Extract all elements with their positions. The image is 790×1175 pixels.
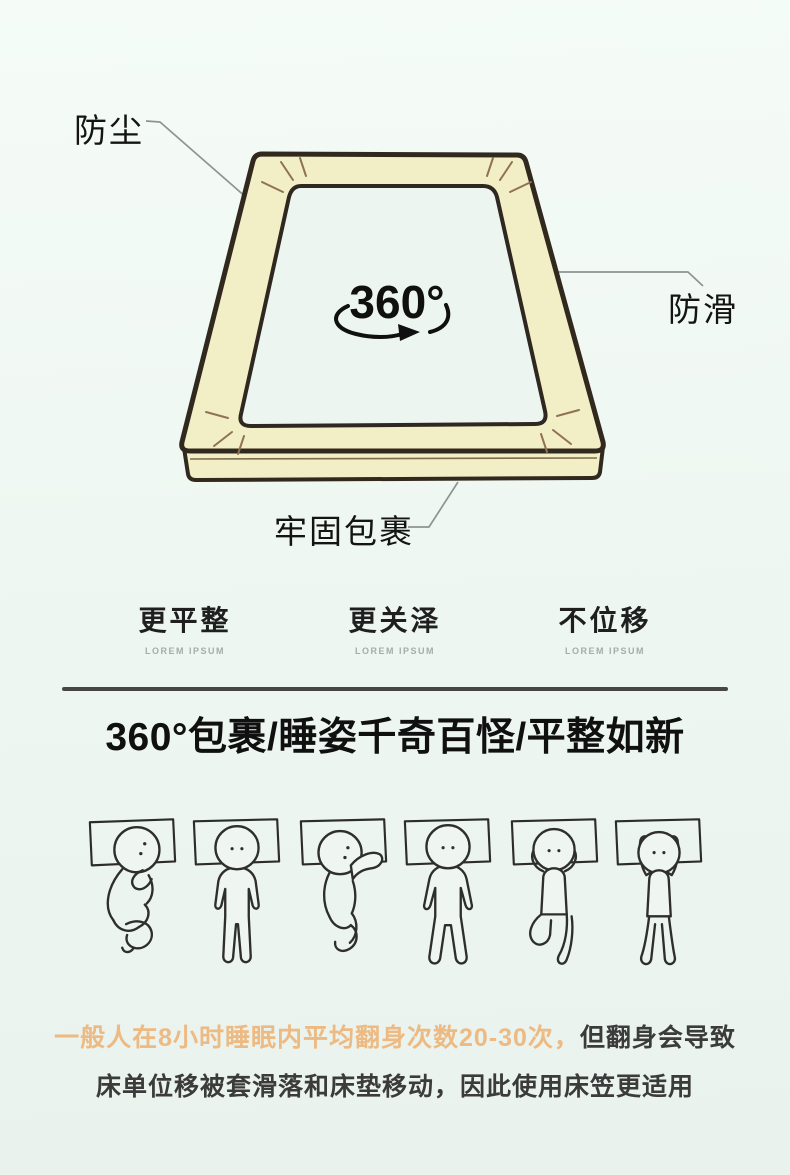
back-legs-apart-sleeper-figure [399,812,497,1004]
mattress-seam-line [190,458,597,459]
hands-behind-head-sleeper-figure [505,812,603,1004]
sleep-note-line2: 床单位移被套滑落和床垫移动，因此使用床笠更适用 [0,1063,790,1112]
section-divider [62,687,728,691]
feature-flatter: 更平整 LOREM IPSUM [85,599,285,656]
wrap-label: 牢固包裹 [274,505,414,553]
rotation-360-label: 360° [349,276,444,328]
feature-glossier: 更关泽 LOREM IPSUM [295,599,495,656]
side-arm-on-pillow-sleeper-figure [294,812,392,1004]
feature-subtitle: LOREM IPSUM [505,646,705,656]
sleep-note: 一般人在8小时睡眠内平均翻身次数20-30次，但翻身会导致 床单位移被套滑落和床… [0,1014,790,1112]
feature-no-shift: 不位移 LOREM IPSUM [505,599,705,656]
arms-raised-sleeper-figure [610,812,708,1004]
feature-title: 更平整 [85,599,285,639]
fetal-side-sleeper-figure [83,812,181,1004]
sleeping-pose-row [83,812,708,1004]
sleep-note-line1-rest: 但翻身会导致 [580,1024,736,1052]
wrap-leader-line [408,482,458,527]
feature-title: 不位移 [505,599,705,639]
antislip-label: 防滑 [668,283,738,331]
feature-title: 更关泽 [295,599,495,639]
sleep-note-highlight: 一般人在8小时睡眠内平均翻身次数20-30次， [54,1024,580,1052]
section-heading: 360°包裹/睡姿千奇百怪/平整如新 [0,706,790,762]
back-straight-sleeper-figure [188,812,286,1004]
feature-subtitle: LOREM IPSUM [295,646,495,656]
feature-subtitle: LOREM IPSUM [85,646,285,656]
feature-list: 更平整 LOREM IPSUM 更关泽 LOREM IPSUM 不位移 LORE… [85,599,705,656]
dustproof-label: 防尘 [74,104,144,152]
product-detail-page: 360° 防尘 防滑 牢固包裹 更平整 LOREM IPSUM 更关泽 LORE… [0,0,790,1175]
sleep-note-line1: 一般人在8小时睡眠内平均翻身次数20-30次，但翻身会导致 [0,1014,790,1063]
